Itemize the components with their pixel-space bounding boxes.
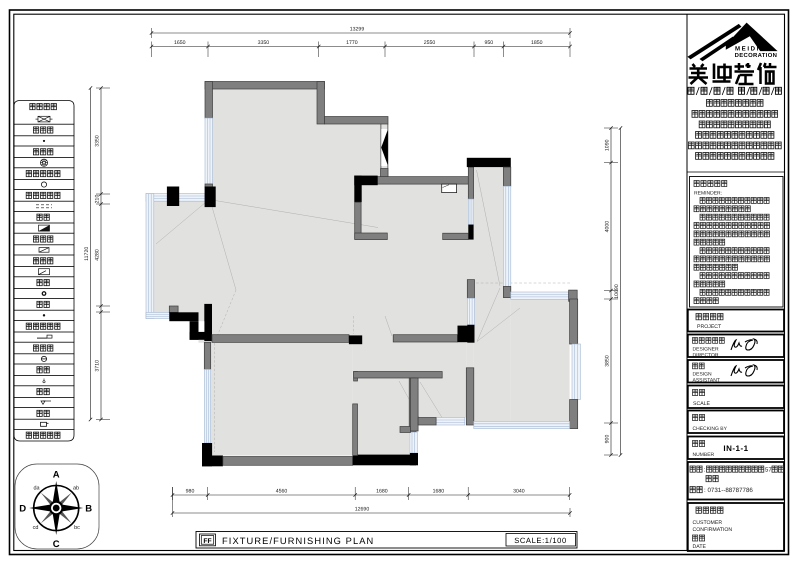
svg-text:CHECKING BY: CHECKING BY	[693, 426, 728, 432]
svg-text:2550: 2550	[424, 40, 436, 46]
svg-text:PROJECT: PROJECT	[697, 324, 722, 330]
svg-text:3850: 3850	[605, 355, 611, 367]
svg-text:12690: 12690	[355, 507, 370, 513]
svg-text:10690: 10690	[614, 284, 620, 299]
svg-text:900: 900	[605, 435, 611, 444]
svg-text:1850: 1850	[531, 40, 543, 46]
svg-text:DIRECTOR: DIRECTOR	[693, 352, 719, 358]
svg-text:IN-1-1: IN-1-1	[723, 444, 748, 453]
svg-text:B: B	[85, 504, 92, 515]
svg-text:A: A	[53, 470, 60, 481]
svg-text:NUMBER: NUMBER	[693, 452, 715, 458]
svg-text:210: 210	[95, 195, 101, 204]
svg-text:da: da	[33, 486, 40, 492]
svg-text:1090: 1090	[605, 139, 611, 151]
svg-text:3710: 3710	[95, 360, 101, 372]
svg-text:11720: 11720	[84, 247, 90, 261]
svg-text:FF: FF	[203, 538, 211, 545]
svg-text:CUSTOMER: CUSTOMER	[693, 520, 723, 526]
svg-text:3350: 3350	[95, 135, 101, 147]
svg-text:13299: 13299	[350, 27, 365, 33]
svg-text:1770: 1770	[346, 40, 358, 46]
svg-text:C: C	[53, 539, 60, 550]
svg-text:4560: 4560	[276, 489, 288, 495]
svg-text:950: 950	[484, 40, 493, 46]
svg-text:FIXTURE/FURNISHING PLAN: FIXTURE/FURNISHING PLAN	[222, 536, 374, 546]
svg-text:1680: 1680	[376, 489, 388, 495]
svg-text:ab: ab	[73, 486, 79, 492]
svg-text:: 0731--88787786: : 0731--88787786	[704, 487, 753, 494]
svg-text:1680: 1680	[433, 489, 445, 495]
svg-text:REMINDER:: REMINDER:	[694, 191, 722, 197]
svg-text:1650: 1650	[174, 40, 186, 46]
svg-text:3040: 3040	[513, 489, 525, 495]
svg-text:3350: 3350	[258, 40, 270, 46]
svg-text:4280: 4280	[95, 249, 101, 261]
svg-text:SCALE:1/100: SCALE:1/100	[514, 536, 567, 545]
svg-text:DATE: DATE	[693, 544, 707, 550]
svg-text:DECORATION: DECORATION	[735, 52, 778, 59]
svg-text:980: 980	[186, 489, 195, 495]
svg-text:D: D	[19, 504, 26, 515]
svg-text:cd: cd	[33, 525, 39, 531]
svg-text:SCALE: SCALE	[693, 401, 711, 407]
svg-text:CONFIRMATION: CONFIRMATION	[693, 527, 733, 533]
svg-text:4000: 4000	[605, 221, 611, 233]
svg-text:bc: bc	[74, 525, 80, 531]
svg-text:ASSISTANT: ASSISTANT	[693, 378, 720, 384]
svg-text:MEIDI: MEIDI	[735, 45, 760, 52]
svg-text:57: 57	[765, 467, 772, 474]
